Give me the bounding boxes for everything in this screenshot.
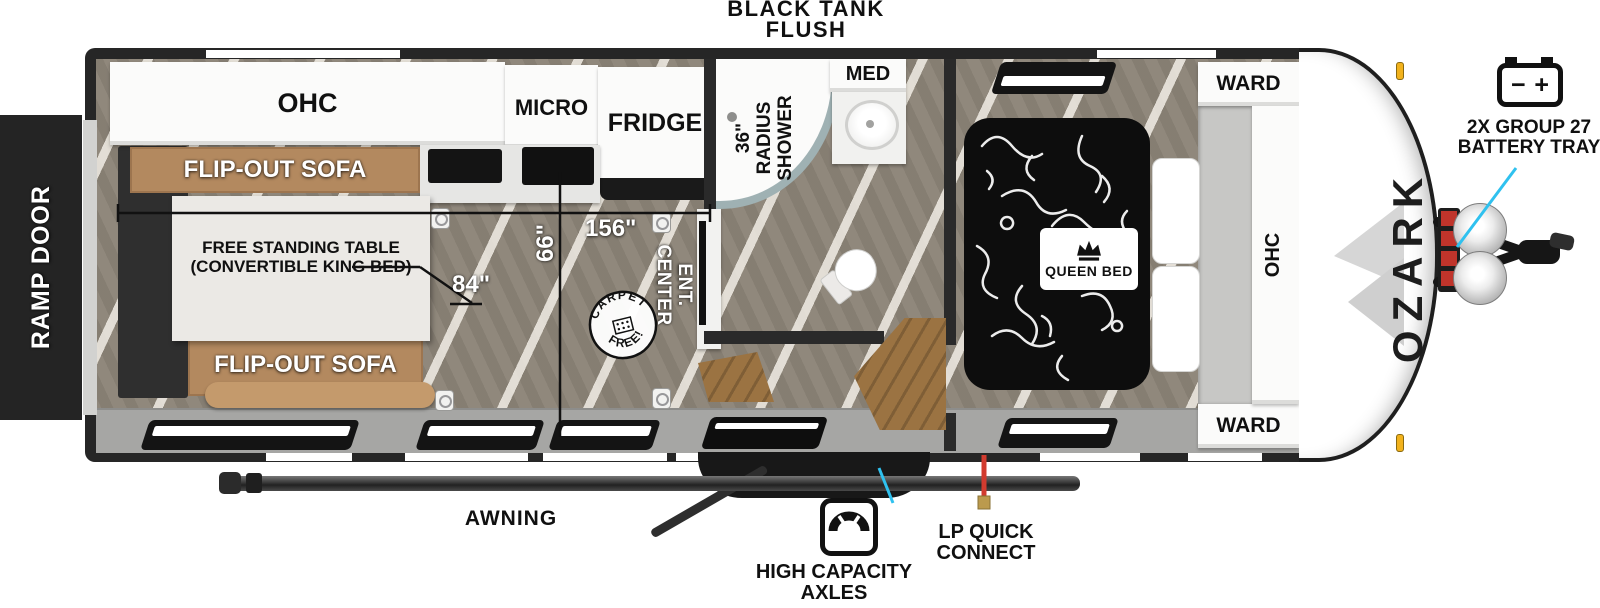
lp-fitting <box>978 496 990 509</box>
dim-66: 66" <box>533 193 559 293</box>
high-capacity-axles-label: HIGH CAPACITY AXLES <box>734 562 934 604</box>
dimension-lines <box>0 0 1600 608</box>
scale-icon <box>820 498 878 556</box>
dim-156: 156" <box>585 216 636 241</box>
black-tank-flush-label: BLACK TANK FLUSH <box>686 0 926 40</box>
dim-84: 84" <box>452 272 490 297</box>
lp-quick-connect-label: LP QUICK CONNECT <box>896 522 1076 564</box>
shower-label: 36" RADIUS SHOWER <box>733 63 797 213</box>
med-label: MED <box>830 64 906 85</box>
awning-label: AWNING <box>421 508 601 530</box>
floorplan-diagram: OHC MICRO FRIDGE FLIP-OUT SOFA FLIP-OUT … <box>0 0 1600 608</box>
